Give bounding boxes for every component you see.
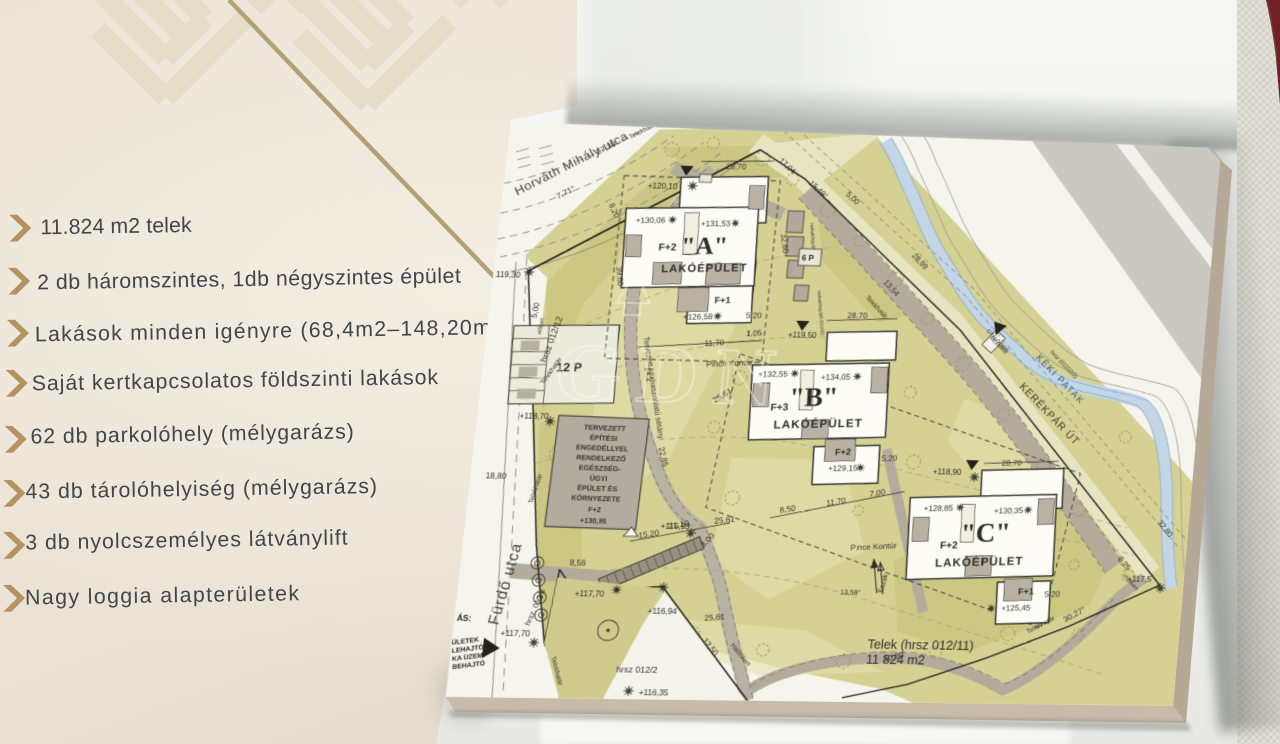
svg-text:+117,70: +117,70 [574,589,605,598]
svg-text:LAKÓÉPÜLET: LAKÓÉPÜLET [935,555,1024,570]
svg-text:+116,35: +116,35 [638,688,669,697]
svg-text:GDN: GDN [550,327,795,424]
svg-text:5,20: 5,20 [881,454,898,463]
svg-text:F+2: F+2 [658,243,677,254]
svg-text:EGÉSZSÉG-: EGÉSZSÉG- [578,463,622,474]
svg-text:F+1: F+1 [714,295,731,305]
svg-text:+126,58: +126,58 [683,312,714,321]
svg-text:28,70: 28,70 [1001,459,1022,468]
svg-text:+117,5: +117,5 [1127,575,1152,584]
svg-text:F+2: F+2 [835,447,852,457]
svg-text:+120,10: +120,10 [647,181,678,191]
svg-text:+118,90: +118,90 [932,467,962,476]
svg-text:13,58°: 13,58° [840,589,861,597]
svg-text:+116,94: +116,94 [647,607,678,616]
svg-text:LAKÓÉPÜLET: LAKÓÉPÜLET [773,417,863,431]
svg-text:5,20: 5,20 [746,311,763,320]
svg-text:28,70: 28,70 [726,162,747,171]
svg-text:+130,95: +130,95 [579,517,606,526]
svg-text:11 824 m2: 11 824 m2 [865,652,925,668]
svg-text:+115,93: +115,93 [660,522,691,531]
svg-text:ÉPÍTÉSI: ÉPÍTÉSI [589,433,618,443]
svg-text:LAKÓÉPÜLET: LAKÓÉPÜLET [661,262,748,276]
svg-text:5,20: 5,20 [1044,590,1060,599]
svg-text:F+1: F+1 [1018,586,1034,596]
svg-text:39,60: 39,60 [614,266,625,287]
svg-text:ÁS:: ÁS: [456,613,472,623]
svg-text:hrsz 012/2: hrsz 012/2 [616,664,658,675]
svg-text:F+2: F+2 [588,506,602,514]
svg-text:+128,85: +128,85 [924,504,954,513]
svg-text:+117,70: +117,70 [500,629,531,638]
svg-text:ÉPÜLET ÉS: ÉPÜLET ÉS [577,483,618,493]
svg-text:ÜGYI: ÜGYI [589,473,608,483]
svg-text:18,80: 18,80 [485,472,507,481]
svg-text:KÖRNYEZETE: KÖRNYEZETE [571,493,622,504]
svg-text:Telek (hrsz 012/11): Telek (hrsz 012/11) [867,637,975,653]
svg-text:+118,70: +118,70 [519,412,550,422]
svg-text:25,61: 25,61 [704,612,725,622]
svg-text:28,70: 28,70 [847,311,868,320]
svg-text:"B": "B" [789,381,839,412]
svg-text:8,56: 8,56 [569,559,587,568]
svg-text:+130,06: +130,06 [635,216,666,225]
svg-text:+125,45: +125,45 [1001,603,1031,613]
svg-text:6 P: 6 P [801,254,814,263]
svg-text:F+2: F+2 [940,540,958,551]
svg-text:+130,35: +130,35 [994,506,1024,515]
svg-text:"C": "C" [960,517,1011,548]
svg-text:"A": "A" [680,231,728,260]
svg-text:+129,15: +129,15 [828,464,858,473]
svg-text:119,30: 119,30 [495,270,521,280]
svg-text:+131,53: +131,53 [701,219,732,228]
